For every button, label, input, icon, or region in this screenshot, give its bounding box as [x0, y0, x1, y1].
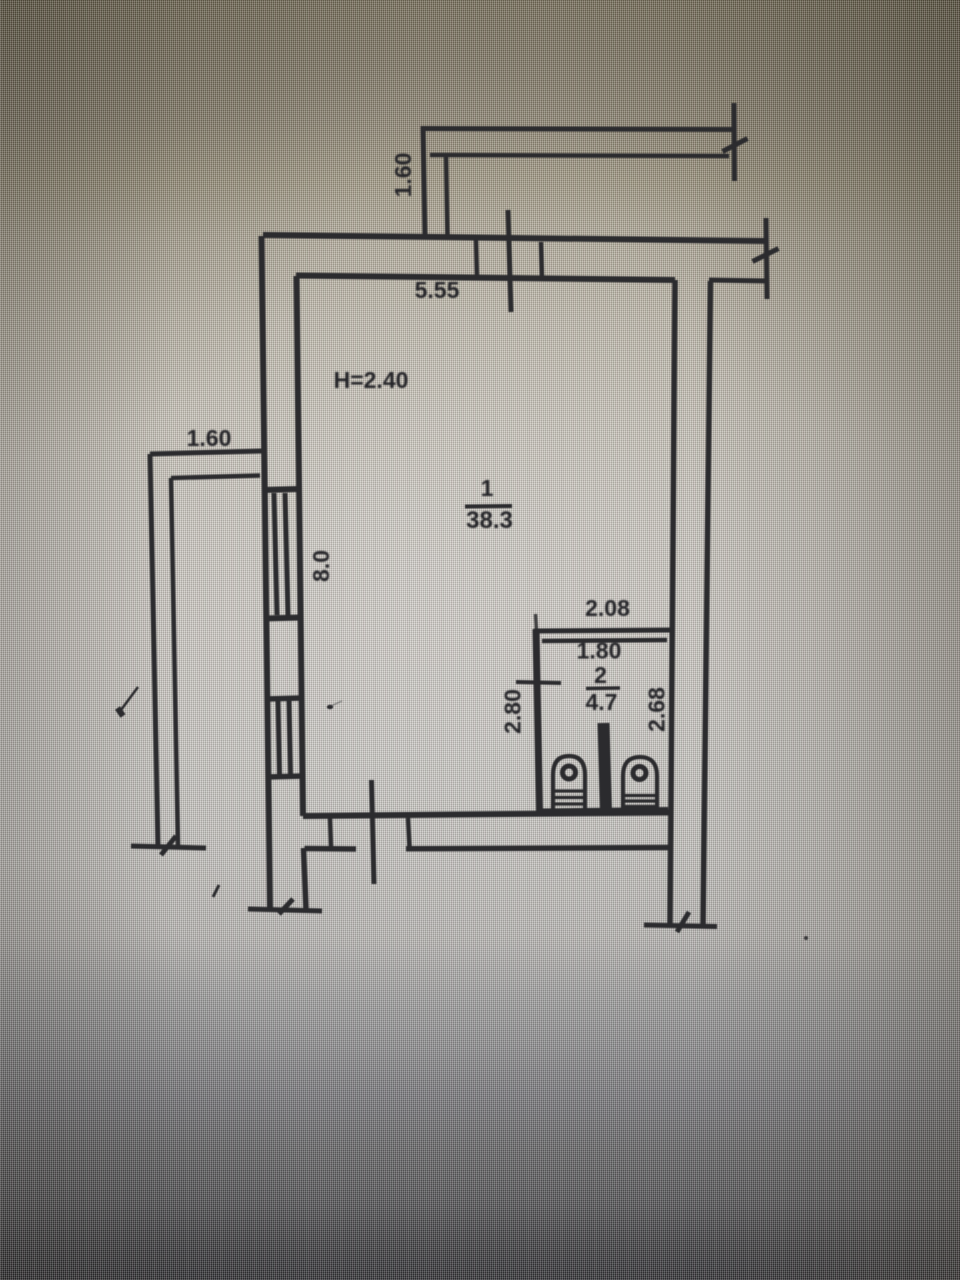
svg-text:1.60: 1.60: [390, 153, 416, 198]
svg-text:38.3: 38.3: [466, 507, 513, 534]
svg-text:4.7: 4.7: [586, 689, 618, 715]
svg-text:1: 1: [481, 475, 494, 501]
svg-text:8.0: 8.0: [308, 550, 334, 582]
svg-text:5.55: 5.55: [415, 277, 460, 303]
svg-text:1.60: 1.60: [187, 425, 232, 451]
svg-text:2.68: 2.68: [644, 687, 670, 732]
svg-text:2.80: 2.80: [500, 689, 526, 734]
svg-text:1.80: 1.80: [577, 638, 622, 664]
svg-text:2: 2: [594, 662, 607, 688]
svg-text:2.08: 2.08: [585, 595, 630, 621]
svg-text:H=2.40: H=2.40: [334, 367, 409, 393]
